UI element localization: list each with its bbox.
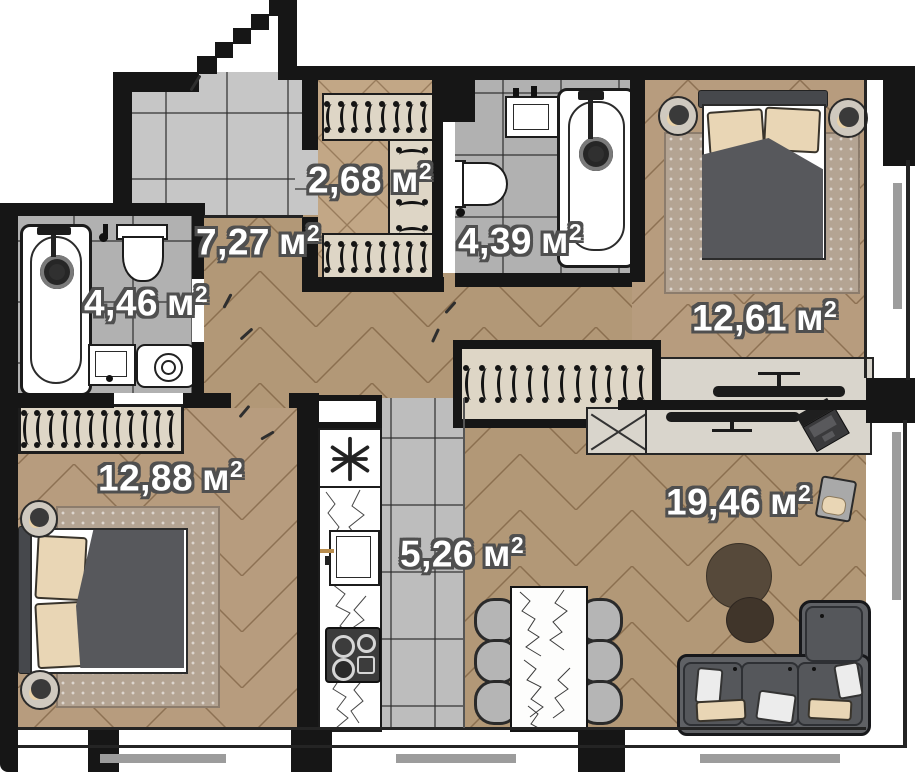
room-label-hallway: 7,27м2 (196, 222, 320, 260)
hanger-icon (169, 413, 179, 445)
closet-top-rail (322, 93, 436, 141)
hanger-icon (639, 368, 649, 400)
wall (630, 80, 645, 282)
floor-edge-line (864, 80, 867, 378)
hanger-icon (422, 244, 432, 270)
hanger-icon (76, 413, 86, 445)
window-sill (700, 754, 840, 763)
wall-step (197, 56, 217, 74)
window-pier (291, 728, 332, 772)
hanger-icon (399, 201, 425, 211)
wall (0, 203, 205, 216)
wall (183, 393, 231, 408)
hanger-icon (63, 413, 73, 445)
hanger-icon (49, 413, 59, 445)
hanger-icon (528, 368, 538, 400)
sofa-pillow (755, 690, 797, 725)
hanger-icon (395, 104, 405, 130)
oven (329, 530, 380, 586)
sofa-button (820, 614, 824, 618)
wall (18, 393, 114, 408)
hanger-icon (497, 368, 507, 400)
hanger-icon (129, 413, 139, 445)
hanger-icon (156, 413, 166, 445)
nightstand-lamp (828, 98, 868, 138)
hanger-icon (89, 413, 99, 445)
window-sill (893, 183, 902, 309)
sofa-button (733, 667, 737, 671)
hanger-icon (340, 244, 350, 270)
room-label-bathroom-guest: 4,39м2 (458, 221, 582, 259)
wall (192, 342, 204, 395)
hanger-icon (395, 244, 405, 270)
wall (113, 72, 132, 205)
wall (455, 273, 632, 287)
faucet-icon (513, 88, 519, 97)
sofa-back-cushion (805, 606, 863, 662)
wall-top (287, 66, 885, 80)
nightstand-lamp (658, 96, 698, 136)
bedroom-second-rail (18, 404, 184, 454)
tv-icon (666, 412, 800, 434)
kitchen-counter (318, 486, 382, 732)
sofa-button (812, 667, 816, 671)
kitchen-vent-box (318, 428, 382, 490)
faucet-icon (531, 86, 537, 97)
bathtub (20, 224, 92, 396)
hanger-icon (381, 244, 391, 270)
hanger-icon (23, 413, 33, 445)
hanger-icon (544, 368, 554, 400)
hanger-icon (465, 368, 475, 400)
entrance-hall-floor (113, 72, 303, 218)
window-sill (892, 432, 901, 600)
kitchen-niche (319, 401, 376, 422)
window-frame-line (903, 420, 907, 748)
room-label-closet: 2,68м2 (308, 160, 432, 198)
wall (302, 277, 444, 292)
hanger-icon (422, 104, 432, 130)
hanger-icon (326, 104, 336, 130)
hanger-icon (116, 413, 126, 445)
sofa-pillow (695, 699, 746, 723)
oven-handle (320, 549, 334, 553)
room-label-kitchen: 5,26м2 (400, 534, 524, 572)
hanger-icon (560, 368, 570, 400)
closet-bottom-rail (322, 233, 436, 281)
sofa-button (788, 667, 792, 671)
wall-step (251, 14, 269, 30)
hanger-icon (326, 244, 336, 270)
window-sill (100, 754, 226, 763)
crossed-cabinet (586, 407, 650, 455)
toilet-bowl (122, 236, 164, 282)
hanger-icon (381, 104, 391, 130)
hanger-icon (408, 244, 418, 270)
window-frame-line (18, 745, 907, 748)
wall-step (233, 28, 251, 44)
hanger-icon (353, 244, 363, 270)
hanger-icon (408, 104, 418, 130)
hanger-icon (103, 413, 113, 445)
sofa-pillow (807, 698, 852, 721)
bed-duvet (76, 530, 184, 668)
nightstand-lamp (20, 670, 60, 710)
nightstand-lamp (20, 500, 58, 538)
stove (325, 627, 381, 683)
window-pier (88, 728, 119, 772)
room-label-bedroom-master: 12,61м2 (692, 298, 837, 336)
tap-icon (456, 208, 465, 217)
wall (302, 80, 318, 150)
wall-corner (883, 66, 915, 166)
hanger-icon (367, 104, 377, 130)
window-sill (396, 754, 516, 763)
dining-table (510, 586, 588, 732)
tap-icon (99, 233, 108, 242)
room-label-bathroom-master: 4,46м2 (84, 283, 208, 321)
room-label-living-room: 19,46м2 (666, 482, 811, 520)
door-leaf-strip (443, 122, 455, 273)
coffee-table (726, 597, 774, 643)
hanger-icon (36, 413, 46, 445)
hanger-icon (143, 413, 153, 445)
sink (505, 96, 559, 138)
hanger-icon (607, 368, 617, 400)
window-pier (578, 728, 625, 772)
wall-step (215, 42, 233, 58)
window-frame-line (906, 160, 910, 380)
floor-edge-line (18, 727, 866, 730)
hanger-icon (367, 244, 377, 270)
room-boundary-line (204, 215, 303, 218)
oven-handle-dot (325, 556, 330, 565)
wall (438, 78, 475, 122)
tv-icon (713, 372, 845, 398)
wall-left (0, 214, 18, 772)
hanger-icon (481, 368, 491, 400)
hanger-icon (353, 104, 363, 130)
washing-machine (136, 344, 196, 388)
wall (297, 395, 318, 728)
toilet-bowl (462, 162, 508, 206)
hanger-icon (592, 368, 602, 400)
hanger-icon (340, 104, 350, 130)
wall (866, 378, 915, 423)
hanger-icon (623, 368, 633, 400)
armchair (815, 475, 858, 523)
room-label-bedroom-second: 12,88м2 (98, 458, 243, 496)
wall (618, 400, 872, 410)
asterisk-icon (320, 430, 380, 488)
hanger-icon (576, 368, 586, 400)
floor-plan: 2,68м2 7,27м2 4,39м2 4,46м2 12,61м2 12,8… (0, 0, 915, 772)
sink (88, 344, 136, 386)
hanger-icon (512, 368, 522, 400)
